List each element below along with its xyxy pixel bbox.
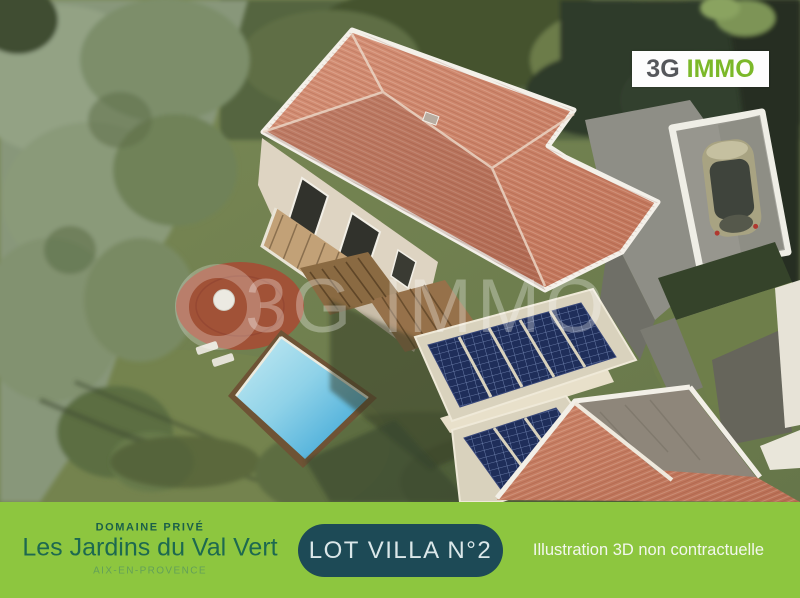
estate-name: Les Jardins du Val Vert <box>0 535 300 563</box>
villa-listing-illustration: 3G IMMO 3G IMMO DOMAINE PRIVÉ Les Jardin… <box>0 0 800 598</box>
garden-table <box>214 290 235 311</box>
agency-logo-immo: IMMO <box>687 57 755 82</box>
agency-logo-3g: 3G <box>646 57 679 82</box>
caption-bar: DOMAINE PRIVÉ Les Jardins du Val Vert AI… <box>0 502 800 598</box>
agency-logo: 3G IMMO <box>632 51 769 87</box>
disclaimer-text: Illustration 3D non contractuelle <box>505 502 792 598</box>
estate-label: DOMAINE PRIVÉ <box>0 522 300 534</box>
lot-badge: LOT VILLA N°2 <box>298 524 503 577</box>
estate-location: AIX-EN-PROVENCE <box>0 565 300 576</box>
estate-title-block: DOMAINE PRIVÉ Les Jardins du Val Vert AI… <box>0 522 300 577</box>
